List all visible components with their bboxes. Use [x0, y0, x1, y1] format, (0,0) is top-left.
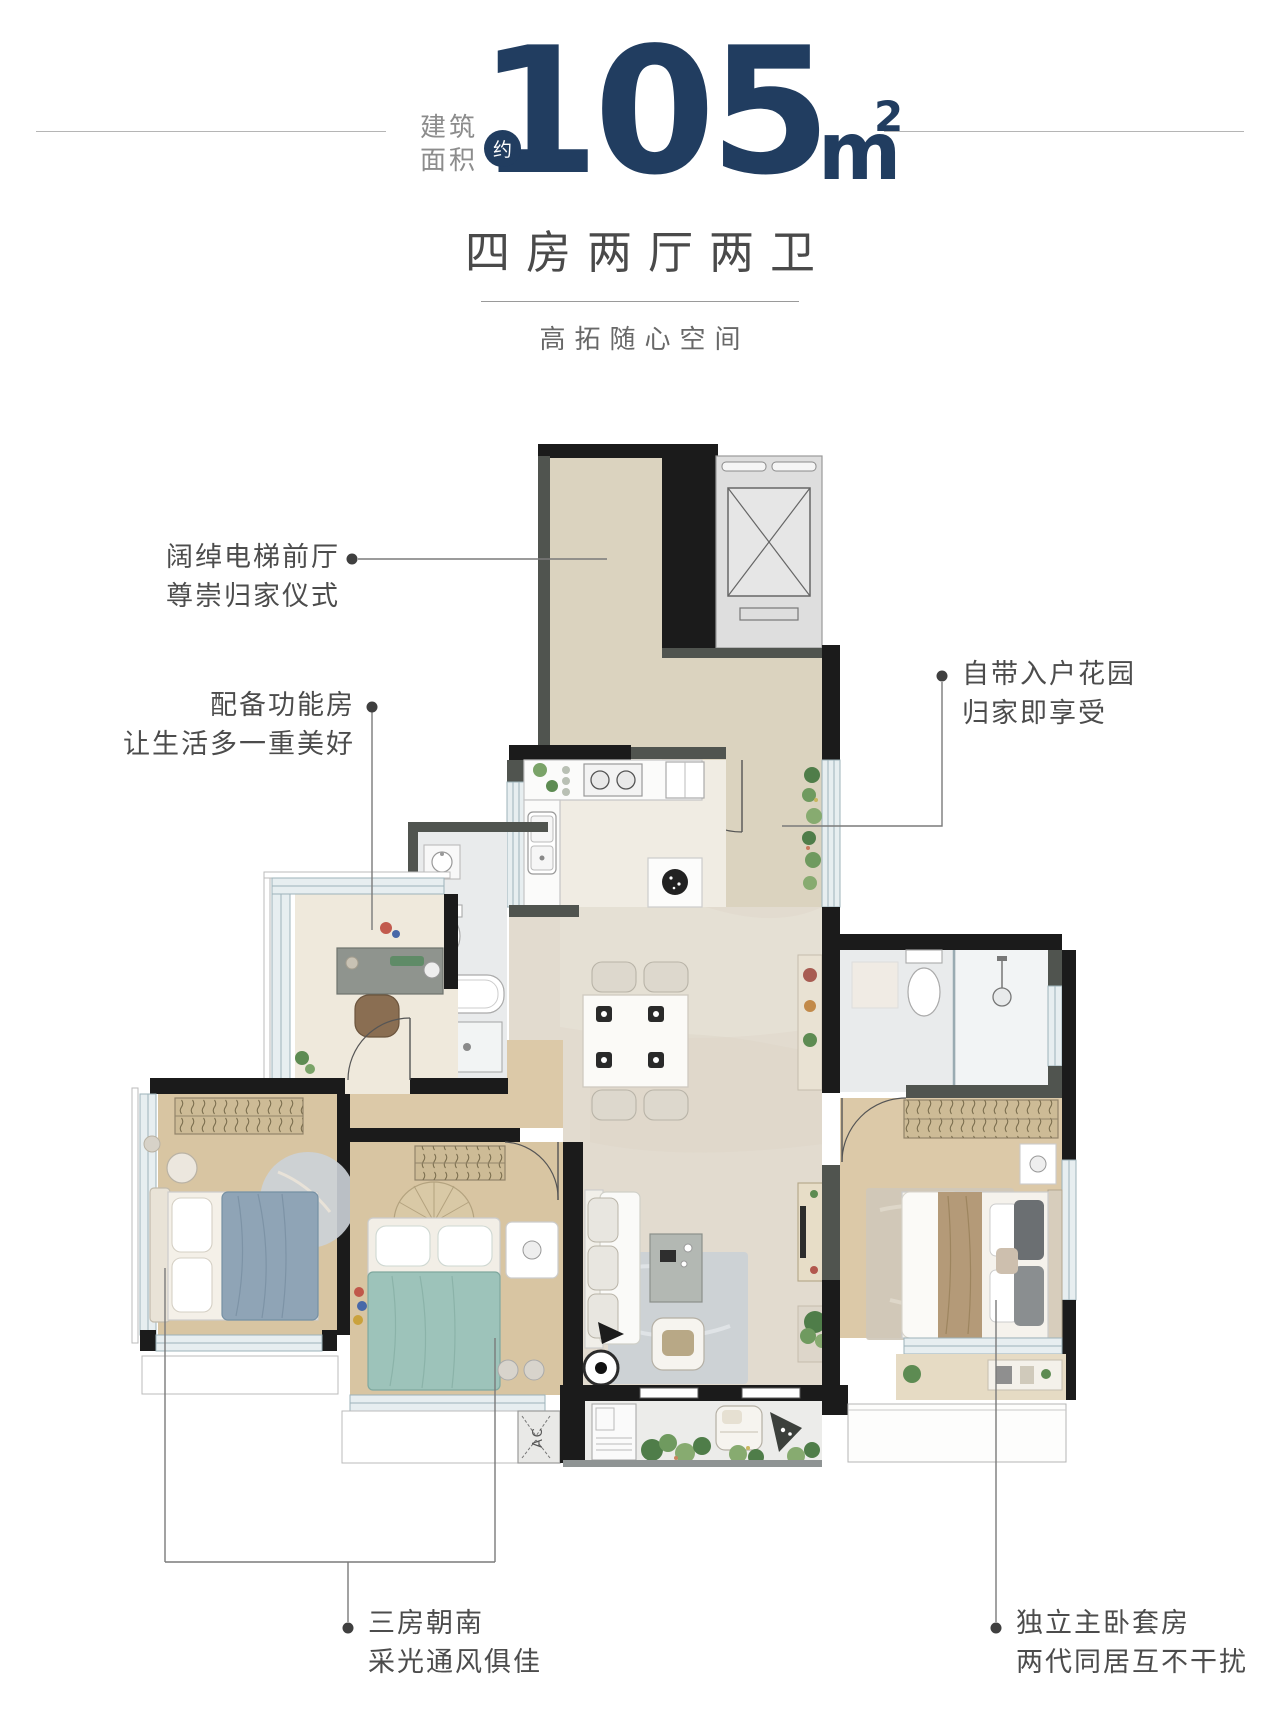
wall: [507, 760, 524, 782]
headboard: [1048, 1190, 1062, 1340]
plant: [295, 1051, 309, 1065]
kitchen-window: [507, 782, 524, 907]
lounge-chair: [716, 1406, 762, 1450]
desk-chair: [355, 995, 399, 1037]
bedroom-middle: AC: [342, 1128, 583, 1463]
side-table: [584, 1351, 618, 1385]
wall: [410, 1078, 458, 1094]
blanket: [368, 1272, 500, 1390]
floor-plan-svg: AC: [0, 0, 1280, 1734]
wall: [822, 1165, 840, 1280]
toilet: [908, 968, 940, 1016]
wall: [1062, 950, 1076, 1160]
function-west-window: [264, 878, 290, 1080]
function-north-window: [264, 872, 450, 894]
accent-pillow: [996, 1248, 1018, 1274]
pillow-dark: [1014, 1266, 1044, 1326]
pillow-dark: [1014, 1200, 1044, 1260]
stool: [524, 1360, 544, 1380]
wall: [1048, 1066, 1062, 1092]
kitchen-island: [648, 858, 702, 907]
floor-plan-page: 建筑 面积 约 105 m 2 四房两厅两卫 高拓随心空间 阔绰电梯前厅 尊崇归…: [0, 0, 1280, 1734]
balcony: [560, 1385, 822, 1467]
balcony-edge: [563, 1460, 822, 1467]
kitchen-sink: [528, 812, 556, 874]
headboard: [150, 1188, 170, 1322]
wall: [822, 1280, 840, 1400]
tv: [800, 1206, 806, 1258]
coffee-table: [650, 1234, 702, 1302]
counter-plant: [546, 780, 558, 792]
wall: [822, 934, 1062, 950]
wall: [408, 822, 548, 832]
wall: [563, 1142, 583, 1395]
pillow: [990, 1270, 1018, 1322]
counter-plant: [533, 763, 547, 777]
wardrobe: [904, 1100, 1058, 1138]
wardrobe: [175, 1098, 303, 1134]
sliding-door: [742, 1388, 800, 1398]
toy: [380, 922, 392, 934]
toy: [354, 1287, 364, 1297]
toy: [353, 1315, 363, 1325]
fridge: [666, 762, 704, 798]
wall: [560, 1385, 585, 1463]
plant: [903, 1365, 921, 1383]
wall: [509, 745, 631, 760]
pillow: [172, 1258, 212, 1312]
entry-corridor-floor: [548, 456, 662, 756]
area-number: 105: [478, 25, 825, 200]
vase: [144, 1136, 160, 1152]
ac-closet: AC: [518, 1411, 560, 1463]
decor-plate: [662, 869, 688, 895]
plant: [1041, 1369, 1051, 1379]
pillow: [376, 1226, 430, 1266]
open-bay: [848, 1404, 1066, 1462]
dining-area: [583, 962, 688, 1120]
south-window: [140, 1330, 338, 1394]
master-suite: [818, 934, 1076, 1462]
stool: [167, 1153, 197, 1183]
wall: [822, 645, 840, 760]
approx-badge: 约: [484, 130, 521, 167]
bath-mat: [852, 962, 898, 1008]
wall: [822, 950, 840, 1093]
wall: [345, 1128, 520, 1142]
wall: [662, 444, 718, 657]
wardrobe: [415, 1146, 505, 1180]
wall: [509, 905, 579, 917]
toilet-tank: [906, 950, 942, 963]
bedside-table: [506, 1222, 558, 1278]
pillow: [172, 1198, 212, 1252]
dining-chair: [644, 962, 688, 992]
ac-label: AC: [531, 1426, 546, 1448]
laptop: [660, 1250, 676, 1262]
plant: [305, 1064, 315, 1074]
shoe-cabinet: [798, 955, 822, 1090]
wall: [1048, 950, 1062, 986]
garden-window: [822, 760, 840, 907]
blanket: [222, 1192, 318, 1320]
tv-console: [798, 1183, 824, 1281]
bay-window-seat: [896, 1354, 1066, 1400]
wall: [906, 1085, 1062, 1098]
water-heater: [592, 1404, 636, 1460]
armchair: [652, 1318, 704, 1370]
function-room: [264, 872, 458, 1094]
stool: [498, 1360, 518, 1380]
bed: [150, 1188, 318, 1322]
wall: [631, 747, 726, 759]
dining-chair: [592, 962, 636, 992]
side-table-ne: [1020, 1144, 1056, 1184]
master-bed: [902, 1190, 1062, 1340]
east-window: [1062, 1160, 1076, 1300]
wall: [662, 648, 824, 658]
sliding-door: [640, 1388, 698, 1398]
sofa: [585, 1190, 640, 1348]
bath-window: [1048, 986, 1062, 1066]
elevator: [716, 456, 822, 648]
dining-chair: [644, 1090, 688, 1120]
stove: [584, 764, 642, 796]
wall: [444, 894, 458, 989]
desk: [337, 948, 443, 994]
master-south-window: [904, 1338, 1062, 1354]
toy: [357, 1301, 367, 1311]
dining-chair: [592, 1090, 636, 1120]
toy: [392, 930, 400, 938]
tan-runner: [938, 1192, 982, 1338]
wall: [538, 456, 550, 747]
wall: [150, 1078, 345, 1094]
wall: [818, 1385, 848, 1415]
pillow: [438, 1226, 492, 1266]
